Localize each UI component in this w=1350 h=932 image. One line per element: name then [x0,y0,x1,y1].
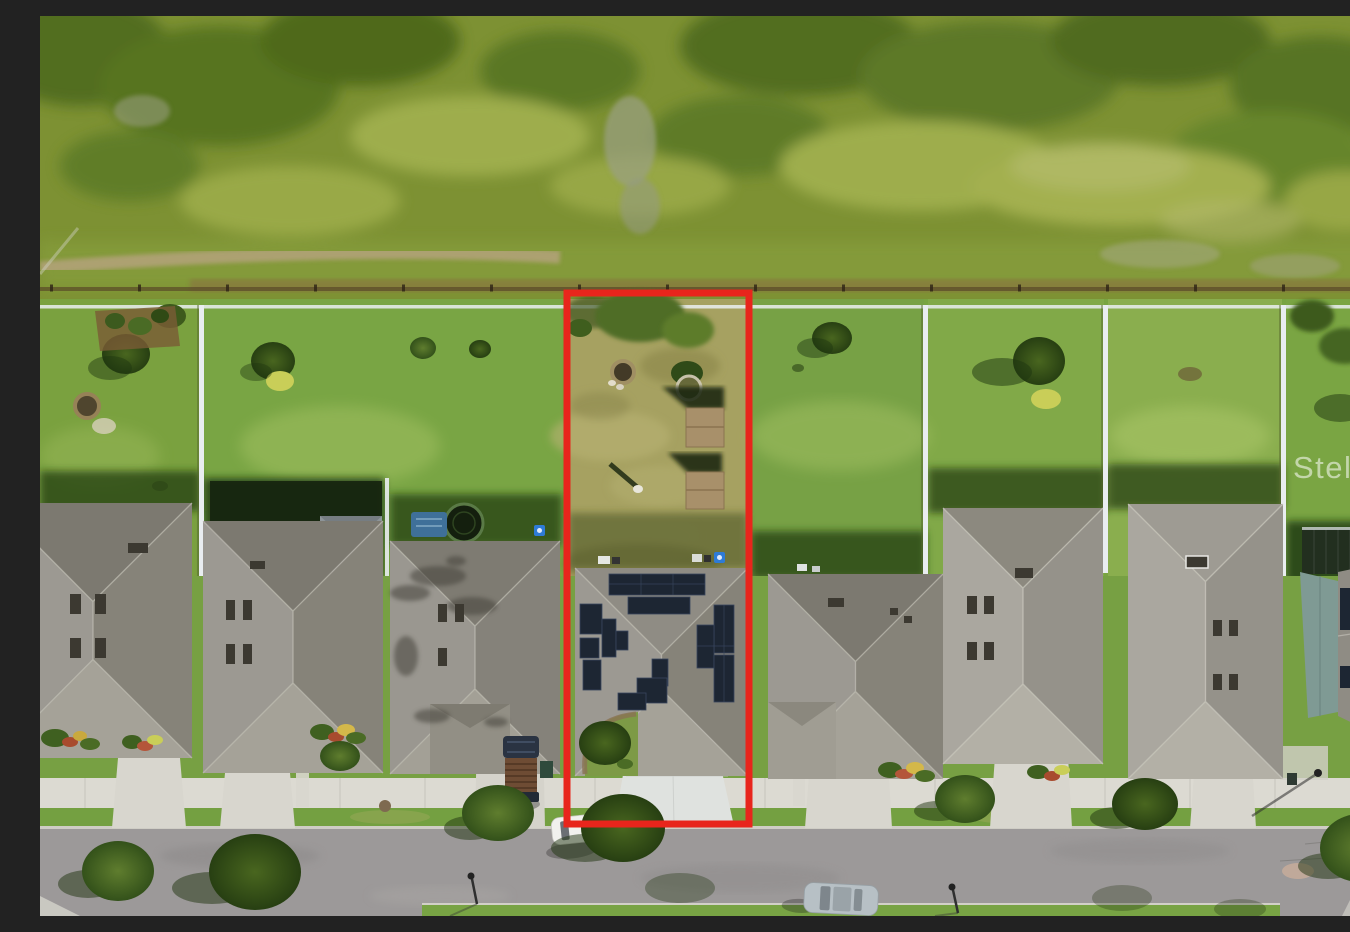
lawn-chair [633,485,643,493]
lamp-head [468,873,475,880]
house-7 [1128,504,1283,779]
skylight [1015,568,1033,578]
watermark-text: Stellar MLS [1293,450,1350,485]
fire-pit [612,361,634,383]
house-6 [943,508,1103,764]
house-5 [768,564,943,779]
lamp-head [949,884,956,891]
play-mat [411,512,447,537]
fire-pit [75,394,99,418]
grass-field [40,16,1350,306]
trash-bin [1287,773,1297,785]
driveway [112,758,186,828]
skylight [250,561,265,569]
yellow-shrub [1031,389,1061,409]
trash-bin [540,761,553,778]
aerial-photo-canvas: Stellar MLS [40,16,1350,916]
rear-white-fence [40,305,1350,309]
lamp-head [1314,769,1322,777]
skylight [828,598,844,607]
trampoline [445,504,483,542]
skylight [128,543,148,553]
aerial-photo: Stellar MLS [40,16,1350,916]
house-4-subject [575,554,748,776]
front-tree [579,721,631,765]
driveway [220,773,295,828]
skylight [1186,556,1208,568]
manhole-cover [379,800,391,812]
house-1 [40,503,192,758]
